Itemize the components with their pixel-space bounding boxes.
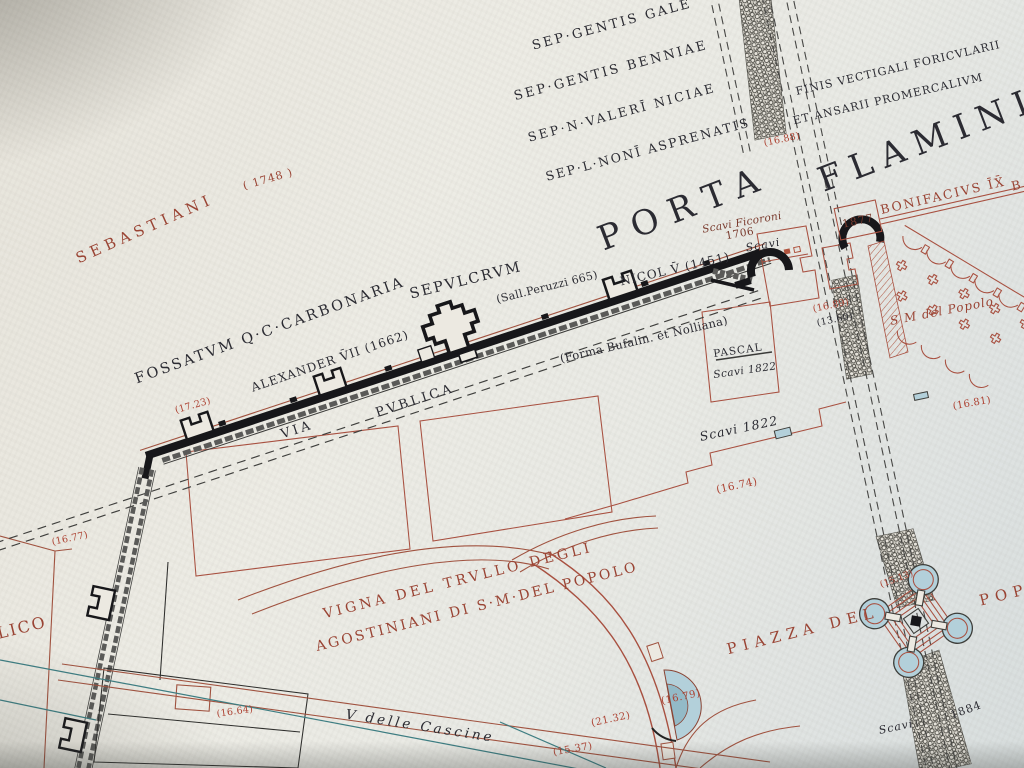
road-stipple-mid xyxy=(826,275,878,379)
hemicycle xyxy=(532,552,701,768)
road-stipple-top xyxy=(725,0,800,140)
map-photo: SEP·GENTIS GALESEP·GENTIS BENNIAESEP·N·V… xyxy=(0,0,1024,768)
torto-tower-2 xyxy=(59,718,87,752)
church-sm-popolo xyxy=(853,225,1024,400)
gate-arch-west xyxy=(751,252,789,277)
obelisk-fountain xyxy=(845,550,987,692)
aurelian-wall xyxy=(0,202,781,551)
map-linework xyxy=(0,0,1024,768)
torto-tower-1 xyxy=(87,586,115,620)
muro-torto-wall xyxy=(54,447,159,768)
via-flaminia-road xyxy=(711,0,972,768)
